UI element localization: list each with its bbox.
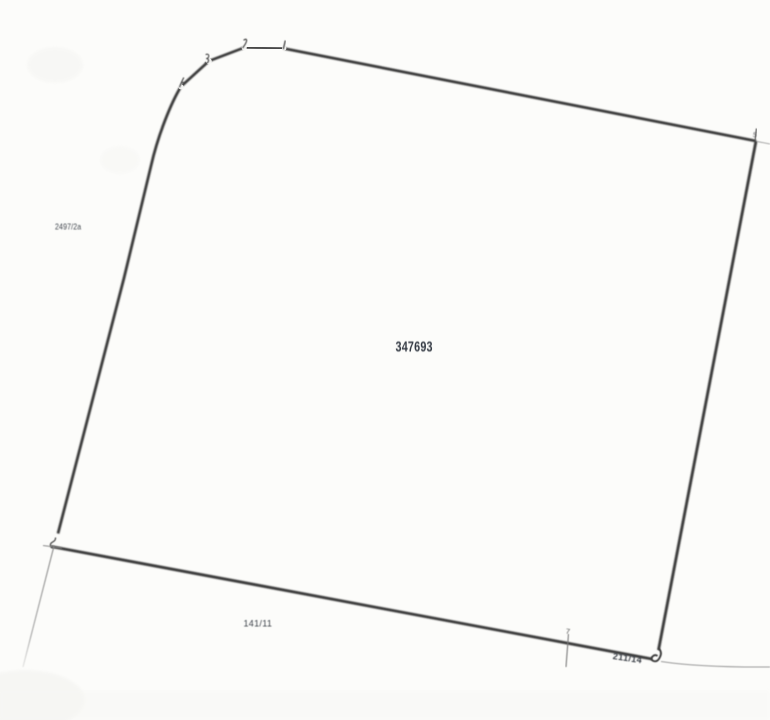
svg-text:141/11: 141/11 (244, 619, 273, 629)
svg-text:347693: 347693 (396, 338, 433, 355)
svg-text:2497/2a: 2497/2a (55, 222, 82, 232)
